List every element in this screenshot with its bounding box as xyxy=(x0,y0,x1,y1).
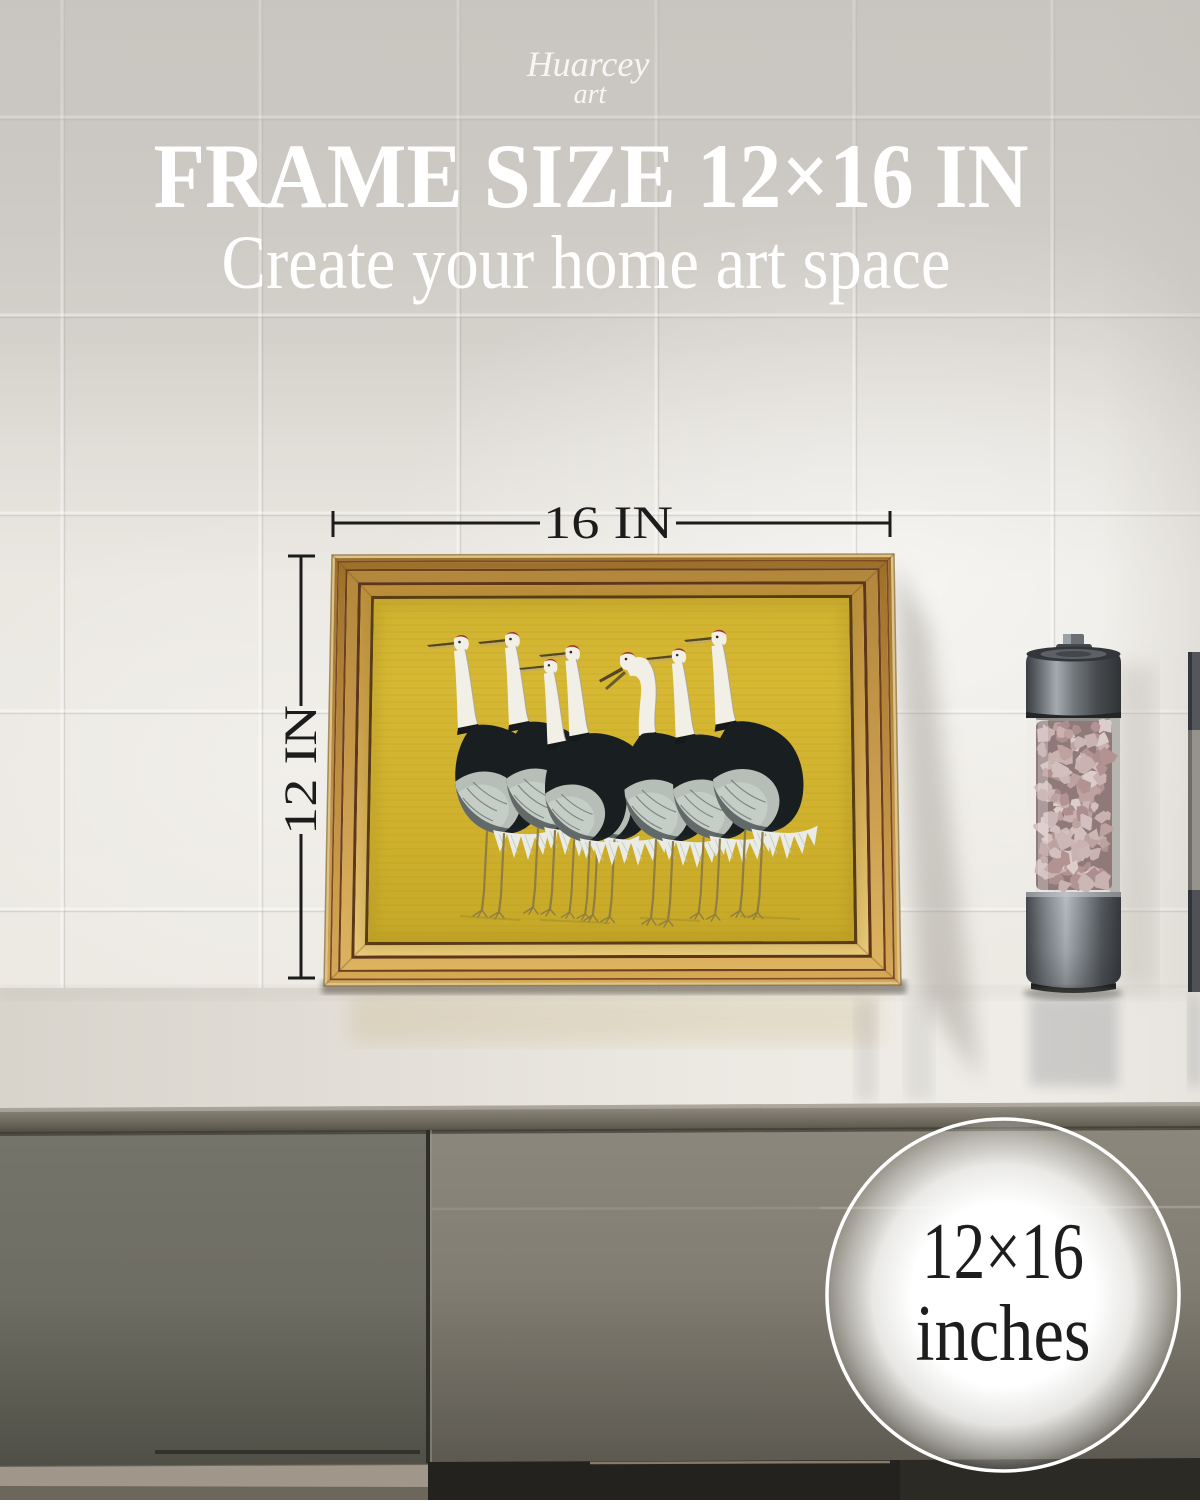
svg-text:Huarcey: Huarcey xyxy=(526,44,650,84)
svg-text:16 IN: 16 IN xyxy=(543,497,673,549)
svg-text:12×16: 12×16 xyxy=(922,1208,1084,1296)
svg-text:FRAME SIZE 12×16 IN: FRAME SIZE 12×16 IN xyxy=(154,125,1029,227)
svg-text:art: art xyxy=(574,79,608,110)
svg-text:inches: inches xyxy=(916,1290,1091,1378)
svg-text:Create your home art space: Create your home art space xyxy=(222,221,951,305)
svg-text:12 IN: 12 IN xyxy=(275,705,327,835)
